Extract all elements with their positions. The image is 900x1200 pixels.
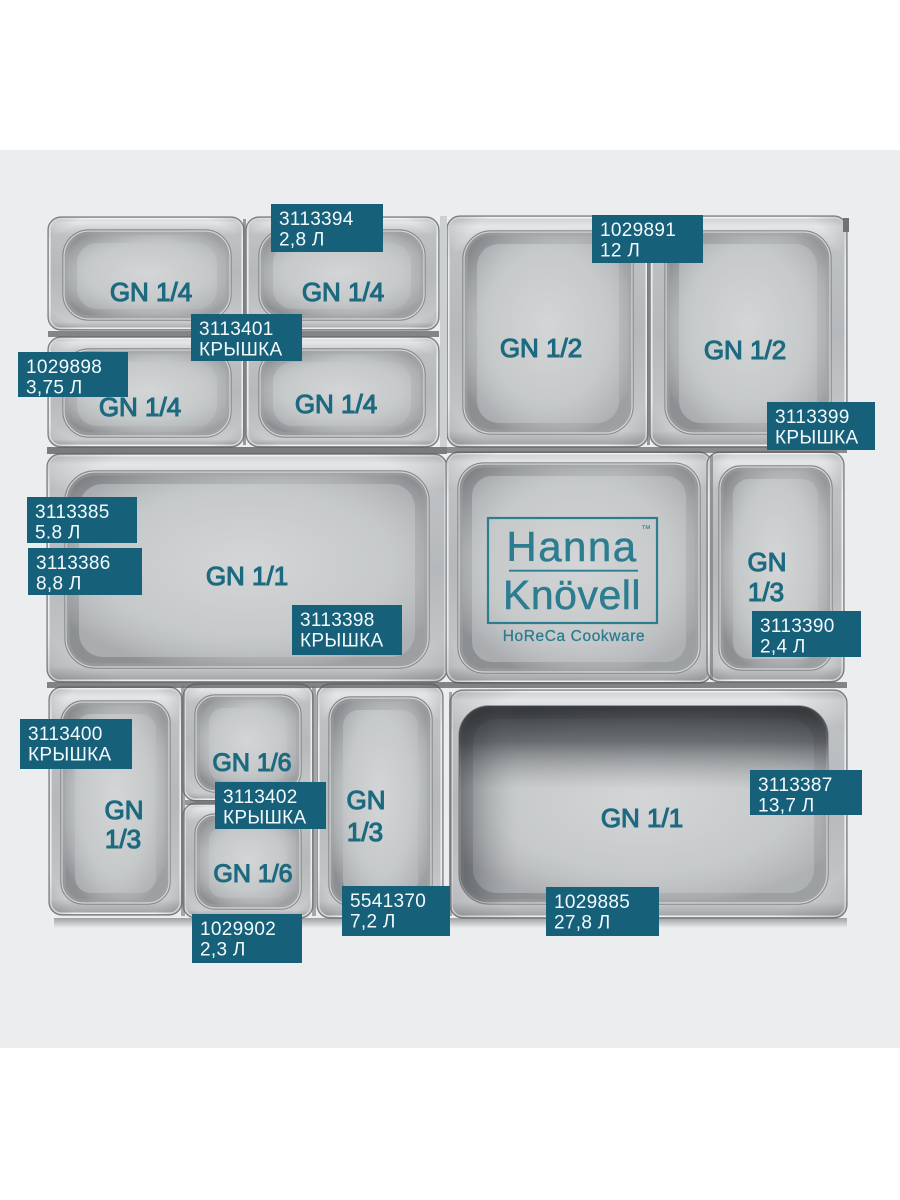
svg-text:GN 1/1: GN 1/1 <box>601 803 683 833</box>
svg-text:GN 1/1: GN 1/1 <box>206 561 288 591</box>
svg-text:3113401: 3113401 <box>199 319 274 340</box>
svg-text:2,4 Л: 2,4 Л <box>760 637 806 658</box>
svg-text:GN: GN <box>347 785 386 815</box>
svg-text:GN 1/2: GN 1/2 <box>500 333 582 363</box>
svg-text:2,3 Л: 2,3 Л <box>200 940 246 961</box>
svg-text:КРЫШКА: КРЫШКА <box>199 340 283 361</box>
svg-text:3113385: 3113385 <box>35 502 110 523</box>
svg-text:1/3: 1/3 <box>105 824 141 854</box>
svg-text:3113400: 3113400 <box>28 724 103 745</box>
svg-text:GN 1/2: GN 1/2 <box>704 335 786 365</box>
svg-text:3113387: 3113387 <box>758 775 833 796</box>
svg-text:3113398: 3113398 <box>300 610 375 631</box>
svg-text:3113402: 3113402 <box>223 787 298 808</box>
svg-text:1029891: 1029891 <box>600 220 676 241</box>
svg-text:27,8 Л: 27,8 Л <box>554 913 611 934</box>
svg-text:GN 1/4: GN 1/4 <box>302 277 384 307</box>
svg-text:GN 1/6: GN 1/6 <box>212 749 291 777</box>
svg-text:7,2 Л: 7,2 Л <box>350 912 396 933</box>
svg-text:GN 1/6: GN 1/6 <box>213 860 292 888</box>
svg-text:КРЫШКА: КРЫШКА <box>223 808 307 829</box>
svg-text:1/3: 1/3 <box>748 577 784 607</box>
svg-text:1029902: 1029902 <box>200 919 276 940</box>
svg-text:КРЫШКА: КРЫШКА <box>300 631 384 652</box>
svg-text:КРЫШКА: КРЫШКА <box>28 745 112 766</box>
svg-text:3113390: 3113390 <box>760 616 835 637</box>
svg-text:3113399: 3113399 <box>775 407 850 428</box>
svg-text:1029898: 1029898 <box>26 357 102 378</box>
svg-text:12 Л: 12 Л <box>600 241 640 262</box>
svg-text:5541370: 5541370 <box>350 891 426 912</box>
svg-text:3113394: 3113394 <box>279 209 354 230</box>
svg-text:GN 1/4: GN 1/4 <box>295 389 377 419</box>
svg-text:5.8 Л: 5.8 Л <box>35 523 81 544</box>
svg-text:Hanna: Hanna <box>506 523 637 570</box>
svg-text:HoReCa Cookware: HoReCa Cookware <box>503 628 646 645</box>
svg-text:Knövell: Knövell <box>503 572 641 618</box>
svg-text:8,8 Л: 8,8 Л <box>36 574 82 595</box>
svg-text:2,8 Л: 2,8 Л <box>279 230 325 251</box>
svg-text:КРЫШКА: КРЫШКА <box>775 428 859 449</box>
svg-text:GN: GN <box>105 795 144 825</box>
svg-text:13,7 Л: 13,7 Л <box>758 796 815 817</box>
svg-text:3,75 Л: 3,75 Л <box>26 378 83 399</box>
svg-text:GN: GN <box>748 547 787 577</box>
svg-text:1/3: 1/3 <box>347 817 383 847</box>
svg-text:1029885: 1029885 <box>554 892 630 913</box>
svg-text:™: ™ <box>641 524 651 535</box>
svg-text:GN 1/4: GN 1/4 <box>110 277 192 307</box>
svg-text:3113386: 3113386 <box>36 553 111 574</box>
